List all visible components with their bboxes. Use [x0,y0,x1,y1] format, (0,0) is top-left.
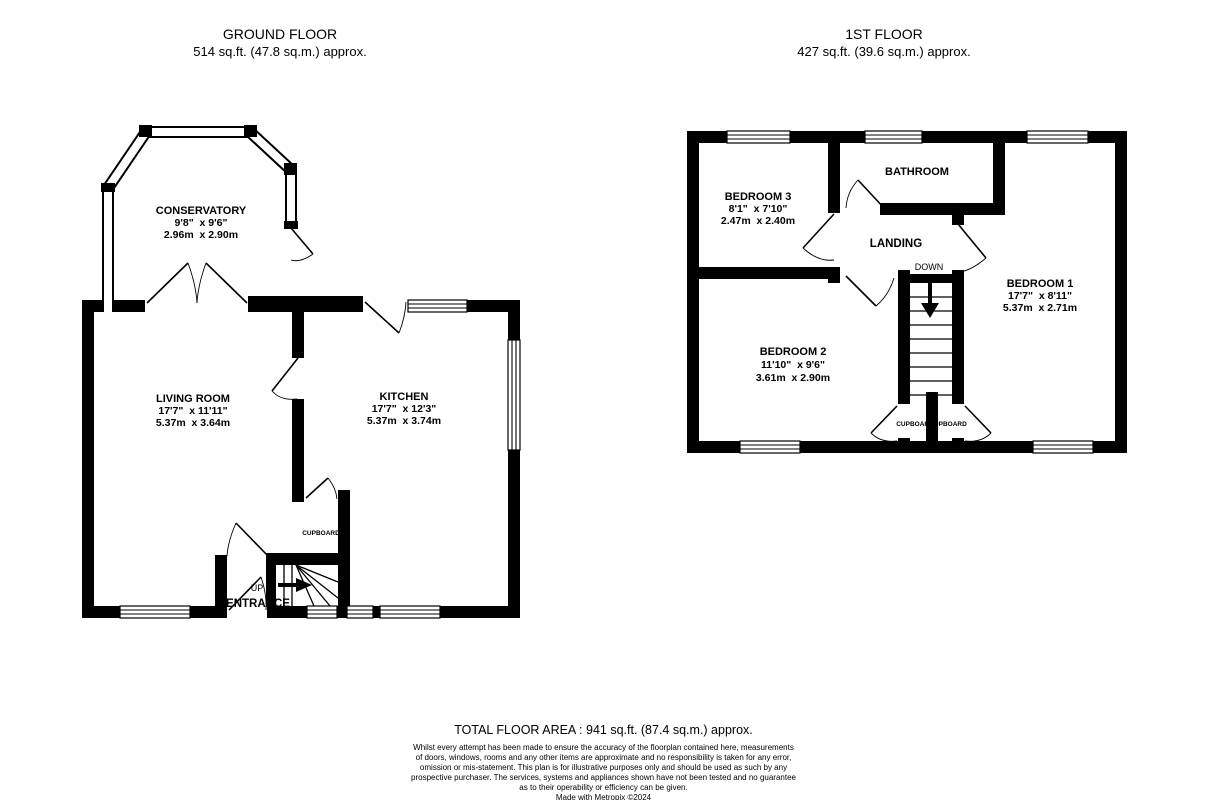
bedroom2-window [740,441,800,453]
entrance-label: ENTRANCE [226,598,290,610]
bathroom-door [846,180,884,208]
footer: TOTAL FLOOR AREA : 941 sq.ft. (87.4 sq.m… [0,723,1207,800]
conservatory-side-door [291,228,313,261]
kitchen-dims-metric: 5.37m x 3.74m [367,415,441,427]
ground-floor-plan: CONSERVATORY 9'8" x 9'6" 2.96m x 2.90m L… [82,125,520,620]
bedroom1-dims-imperial: 17'7" x 8'11" [1008,290,1072,302]
disclaimer-line: of doors, windows, rooms and any other i… [0,753,1207,763]
kitchen-top-window [408,300,467,312]
disclaimer-line: as to their operability or efficiency ca… [0,783,1207,793]
bedroom3-dims-metric: 2.47m x 2.40m [721,215,795,227]
stairs-down [910,281,952,395]
bathroom-window [865,131,922,143]
bedroom2-name: BEDROOM 2 [760,346,827,358]
first-interior-walls [687,131,1005,453]
bedroom2-door [846,276,894,306]
up-label: UP [251,583,264,593]
bedroom1-name: BEDROOM 1 [1007,278,1074,290]
living-kitchen-door [272,358,298,399]
living-room-window [120,606,190,618]
down-arrow-icon [921,281,939,318]
bedroom1-dims-metric: 5.37m x 2.71m [1003,302,1077,314]
ground-windows [120,300,520,618]
disclaimer-line: prospective purchaser. The services, sys… [0,773,1207,783]
kitchen-top-door [365,302,406,333]
bedroom1-bottom-window [1033,441,1093,453]
cupboard-left-door [871,406,897,441]
living-room-name: LIVING ROOM [156,393,230,405]
ground-cupboard-label: CUPBOARD [302,530,340,537]
conservatory-dims-metric: 2.96m x 2.90m [164,229,238,241]
landing-label: LANDING [870,238,922,250]
living-room-dims-imperial: 17'7" x 11'11" [158,405,227,417]
disclaimer-line: Whilst every attempt has been made to en… [0,743,1207,753]
bedroom1-door [958,224,986,272]
first-floor-plan: BEDROOM 3 8'1" x 7'10" 2.47m x 2.40m BAT… [687,131,1127,453]
conservatory-dims-imperial: 9'8" x 9'6" [175,217,228,229]
kitchen-name: KITCHEN [380,391,429,403]
bedroom3-dims-imperial: 8'1" x 7'10" [729,203,788,215]
bathroom-label: BATHROOM [885,166,949,178]
bedroom3-window [727,131,790,143]
conservatory-name: CONSERVATORY [156,205,247,217]
living-room-dims-metric: 5.37m x 3.64m [156,417,230,429]
bedroom2-dims-imperial: 11'10" x 9'6" [761,359,825,371]
ground-interior-walls [215,312,350,618]
bedroom1-top-window [1027,131,1088,143]
bedroom2-dims-metric: 3.61m x 2.90m [756,372,830,384]
credit-line: Made with Metropix ©2024 [0,793,1207,800]
bedroom3-door [803,214,834,260]
bedroom3-name: BEDROOM 3 [725,191,792,203]
french-doors-to-conservatory [147,263,247,303]
hall-door [227,523,268,556]
disclaimer-line: omission or mis-statement. This plan is … [0,763,1207,773]
cupboard-right-door [965,406,991,441]
kitchen-bottom-window [380,606,440,618]
down-label: DOWN [915,262,944,272]
cupboard-right-label: CUPBOARD [929,421,967,428]
kitchen-dims-imperial: 17'7" x 12'3" [372,403,437,415]
kitchen-right-window [508,340,520,450]
ground-cupboard-door [306,478,337,499]
floorplan-canvas: CONSERVATORY 9'8" x 9'6" 2.96m x 2.90m L… [0,0,1207,800]
total-floor-area: TOTAL FLOOR AREA : 941 sq.ft. (87.4 sq.m… [0,723,1207,737]
